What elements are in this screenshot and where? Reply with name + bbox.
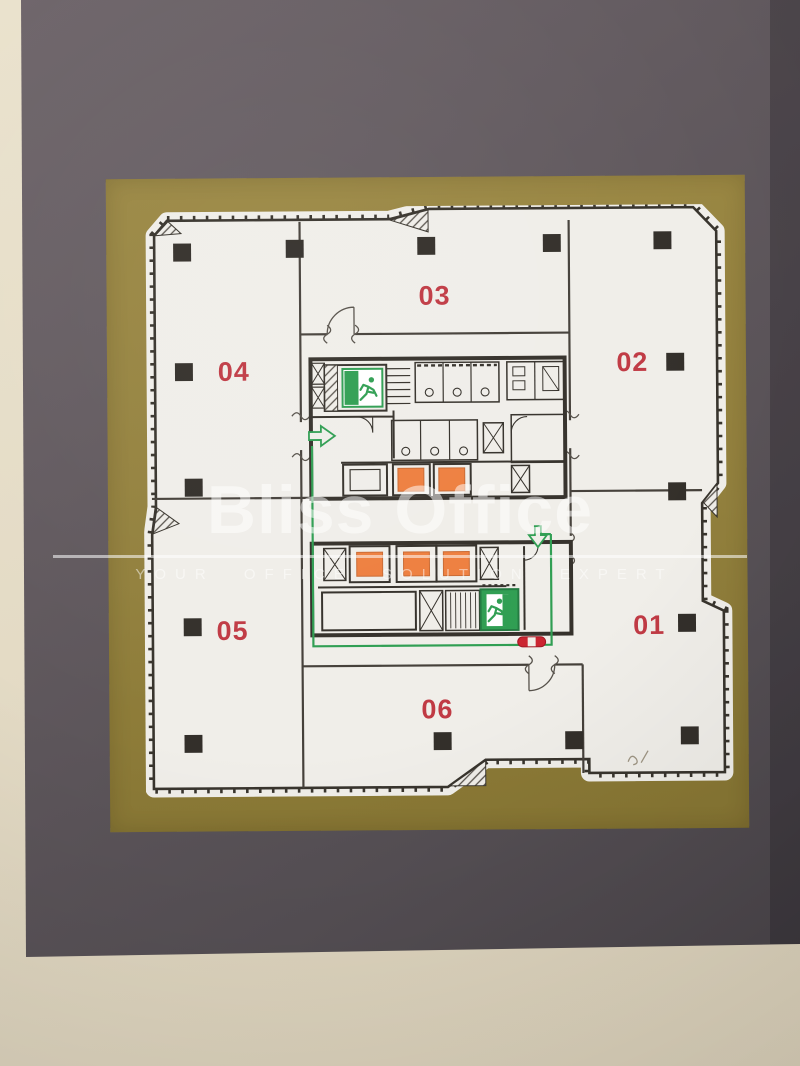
unit-number-01: 01 (633, 610, 665, 640)
plaque-side-edge (770, 0, 800, 944)
exit-sign-upper-icon (342, 369, 382, 407)
plaque-board: 01 02 03 04 05 06 (0, 0, 800, 1066)
core-upper (310, 358, 565, 499)
core-lower (312, 542, 572, 636)
gold-mat-panel: 01 02 03 04 05 06 (106, 175, 750, 832)
fire-point-marker (518, 637, 546, 647)
unit-number-03: 03 (419, 281, 451, 311)
unit-number-04: 04 (218, 357, 250, 387)
unit-number-06: 06 (421, 694, 453, 724)
unit-number-02: 02 (616, 347, 648, 377)
exit-sign-lower-icon (480, 585, 518, 630)
floor-plan-drawing: 01 02 03 04 05 06 (142, 204, 742, 806)
unit-number-05: 05 (217, 616, 249, 646)
